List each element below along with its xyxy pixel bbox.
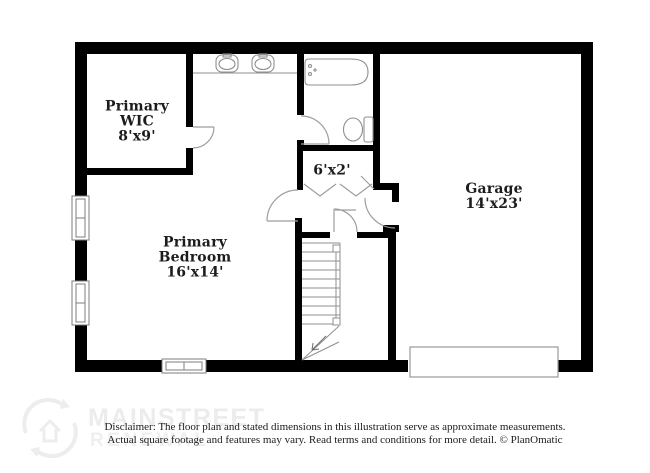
room-dimensions: 8'x9' bbox=[105, 130, 169, 145]
room-label-hall-closet: 6'x2' bbox=[313, 164, 350, 179]
staircase bbox=[302, 243, 340, 360]
floor-plan-drawing bbox=[0, 0, 650, 473]
stair-direction-arrow-icon bbox=[312, 336, 326, 350]
disclaimer-text: Disclaimer: The floor plan and stated di… bbox=[20, 421, 650, 447]
stairs-door bbox=[334, 209, 357, 232]
toilet bbox=[344, 117, 374, 142]
room-name-line: Garage bbox=[465, 182, 522, 197]
room-label-primary-wic: Primary WIC 8'x9' bbox=[105, 100, 169, 145]
bathroom-fixtures bbox=[193, 54, 373, 142]
room-label-garage: Garage 14'x23' bbox=[465, 182, 522, 212]
bedroom-door bbox=[267, 190, 298, 221]
room-dimensions: 16'x14' bbox=[159, 266, 232, 281]
window-bedroom-bottom bbox=[162, 359, 206, 373]
window-left-lower bbox=[72, 281, 89, 325]
stair-winders bbox=[302, 326, 339, 360]
room-name-line: Primary bbox=[159, 236, 232, 251]
door-swings bbox=[193, 116, 395, 232]
wic-door bbox=[193, 127, 214, 148]
sink-left bbox=[216, 54, 238, 72]
room-name-line: Primary bbox=[105, 100, 169, 115]
room-name-line: WIC bbox=[105, 115, 169, 130]
bifold-closet-doors bbox=[304, 184, 372, 196]
bathtub bbox=[305, 59, 368, 85]
room-name-line: Bedroom bbox=[159, 251, 232, 266]
window-left-upper bbox=[72, 196, 89, 240]
sink-right bbox=[252, 54, 274, 72]
room-dimensions: 6'x2' bbox=[313, 164, 350, 179]
floor-plan-page: MAINSTREET RENEWAL bbox=[0, 0, 650, 473]
bathroom-door bbox=[301, 116, 329, 144]
windows bbox=[72, 196, 206, 373]
room-dimensions: 14'x23' bbox=[465, 197, 522, 212]
room-label-primary-bedroom: Primary Bedroom 16'x14' bbox=[159, 236, 232, 281]
garage-door-panel bbox=[410, 347, 558, 377]
disclaimer-line-2: Actual square footage and features may v… bbox=[20, 434, 650, 447]
disclaimer-line-1: Disclaimer: The floor plan and stated di… bbox=[20, 421, 650, 434]
